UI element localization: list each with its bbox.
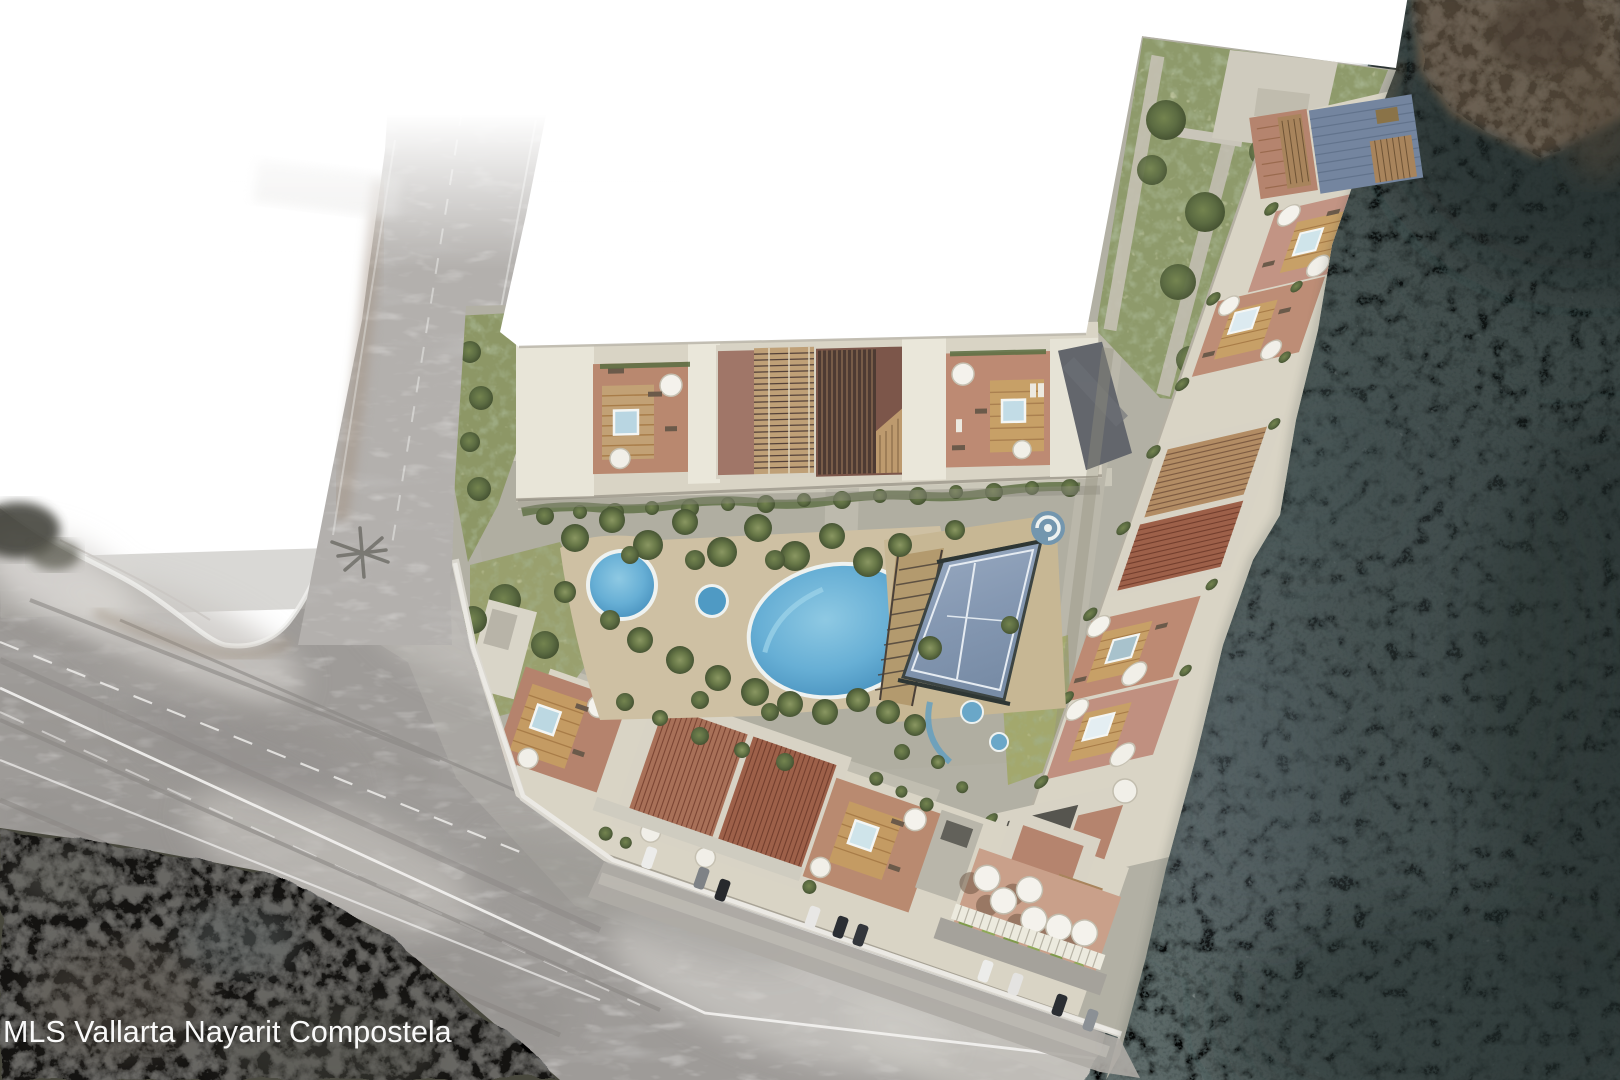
svg-text:MLS Vallarta Nayarit Compostel: MLS Vallarta Nayarit Compostela	[3, 1015, 452, 1049]
